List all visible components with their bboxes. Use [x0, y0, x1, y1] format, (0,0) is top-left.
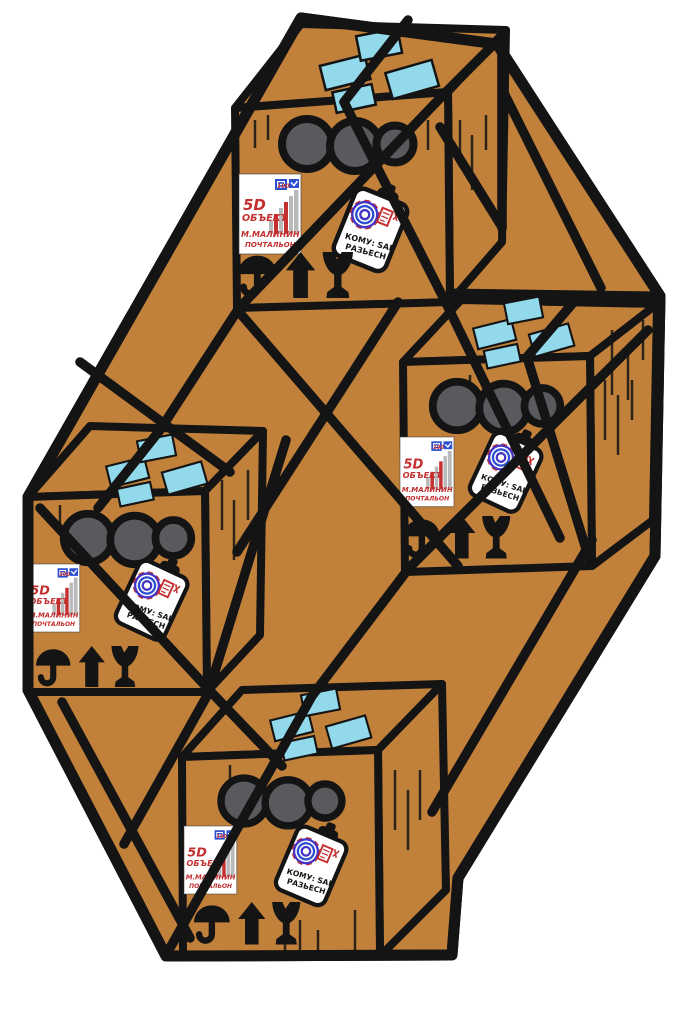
illustration-canvas: 100 5D ОБЪЕКТ М.МАЛИНИН ПОЧТАЛЬОН: [0, 0, 700, 1012]
fold-line: [450, 293, 657, 296]
parcel-illustration: 100 5D ОБЪЕКТ М.МАЛИНИН ПОЧТАЛЬОН: [0, 0, 700, 1012]
side-face: [590, 304, 657, 566]
